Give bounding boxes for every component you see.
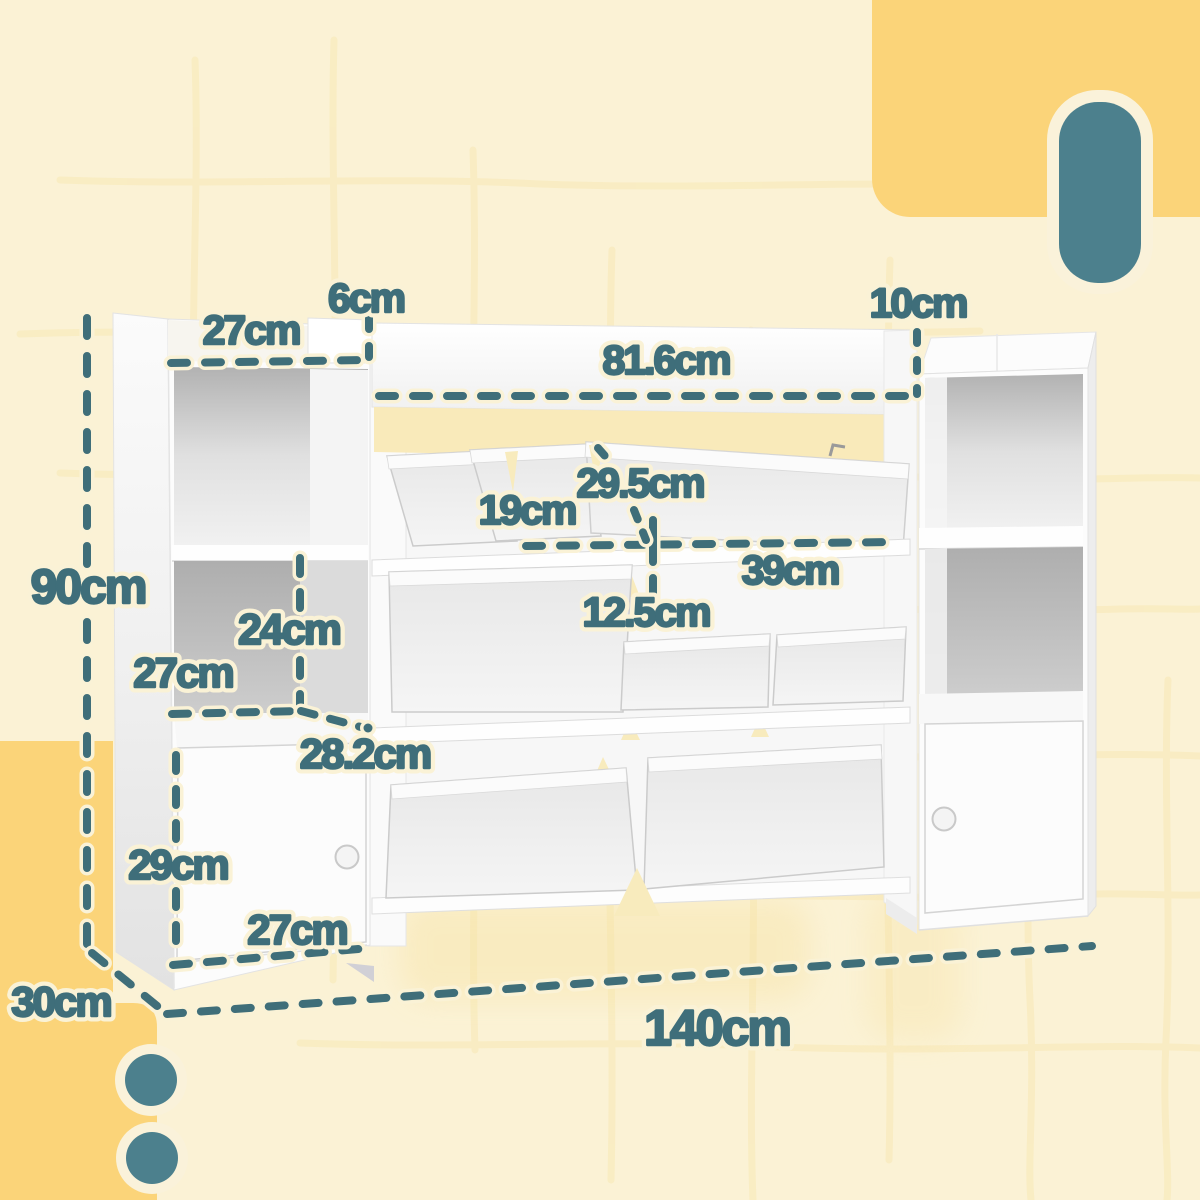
svg-text:10cm: 10cm bbox=[870, 280, 967, 326]
svg-text:29.5cm: 29.5cm bbox=[576, 460, 703, 506]
svg-text:27cm: 27cm bbox=[203, 307, 300, 353]
svg-text:12.5cm: 12.5cm bbox=[582, 589, 709, 635]
svg-text:28.2cm: 28.2cm bbox=[300, 730, 430, 777]
svg-text:90cm: 90cm bbox=[31, 561, 146, 614]
svg-text:140cm: 140cm bbox=[644, 1000, 790, 1056]
svg-text:27cm: 27cm bbox=[133, 649, 232, 696]
svg-text:6cm: 6cm bbox=[328, 275, 404, 321]
svg-text:19cm: 19cm bbox=[479, 487, 576, 533]
svg-text:27cm: 27cm bbox=[247, 906, 346, 953]
svg-text:30cm: 30cm bbox=[11, 978, 110, 1025]
svg-text:39cm: 39cm bbox=[742, 547, 839, 593]
svg-text:81.6cm: 81.6cm bbox=[602, 337, 729, 383]
svg-text:29cm: 29cm bbox=[128, 841, 227, 888]
svg-text:24cm: 24cm bbox=[238, 606, 340, 654]
